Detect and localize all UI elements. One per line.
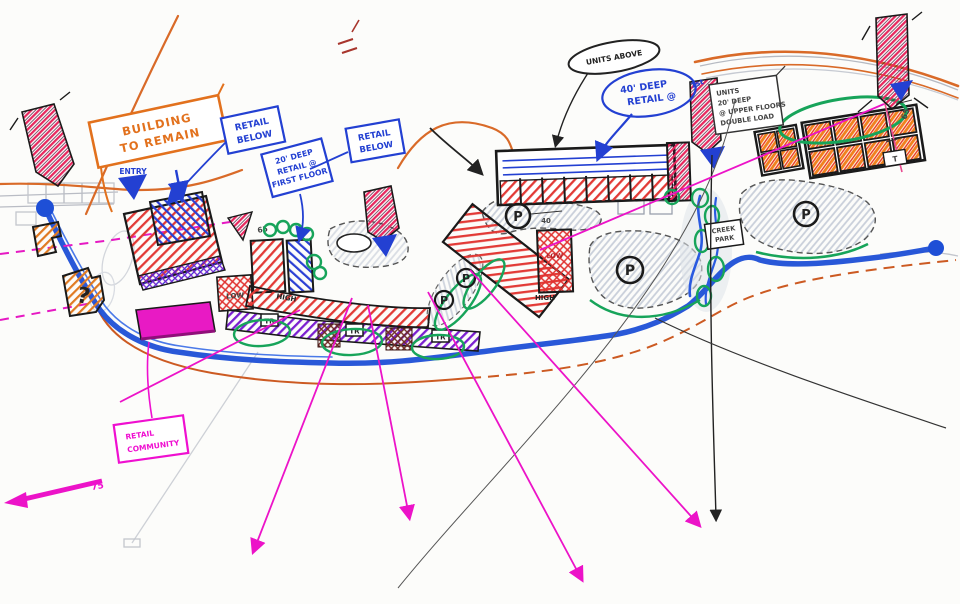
linear-building-end-block bbox=[667, 142, 691, 201]
entry-triangle-left bbox=[118, 174, 147, 200]
parking-letter-1: P bbox=[513, 210, 523, 225]
roundabout-dot-right bbox=[928, 240, 944, 256]
building-linear-top bbox=[496, 142, 691, 207]
building-remain-left bbox=[33, 222, 61, 256]
building-pink-retail bbox=[136, 302, 215, 339]
site-plan-sketch: ? LOW HIGH 65 TR TR bbox=[0, 0, 960, 604]
parking-letter-2: P bbox=[625, 263, 635, 279]
callout-retail-community: RETAIL COMMUNITY bbox=[114, 342, 189, 463]
entry-triangle-small bbox=[228, 212, 252, 240]
low-label-tower: LOW bbox=[546, 252, 563, 261]
parking-letter-5: P bbox=[440, 294, 448, 307]
sketch-svg: ? LOW HIGH 65 TR TR bbox=[0, 0, 960, 604]
parking-letter-4: P bbox=[462, 272, 470, 285]
building-red-center bbox=[251, 239, 286, 293]
magenta-arrow-75: 75 bbox=[4, 481, 105, 508]
entry-marker-left: ENTRY bbox=[118, 167, 147, 200]
parking-letter-3: P bbox=[801, 208, 811, 223]
dim-75-label: 75 bbox=[91, 481, 105, 493]
high-label-diagonal: HIGH bbox=[535, 294, 555, 302]
courtyard-oval bbox=[337, 234, 371, 252]
roundabout-dot-left bbox=[36, 199, 54, 217]
callout-units-upper: UNITS 20' DEEP @ UPPER FLOORS DOUBLE LOA… bbox=[708, 66, 793, 134]
dim-40-label: 40 bbox=[541, 217, 551, 225]
entry-banner-topleft bbox=[10, 92, 74, 186]
t-box: T bbox=[883, 149, 907, 166]
low-label: LOW bbox=[226, 291, 245, 300]
